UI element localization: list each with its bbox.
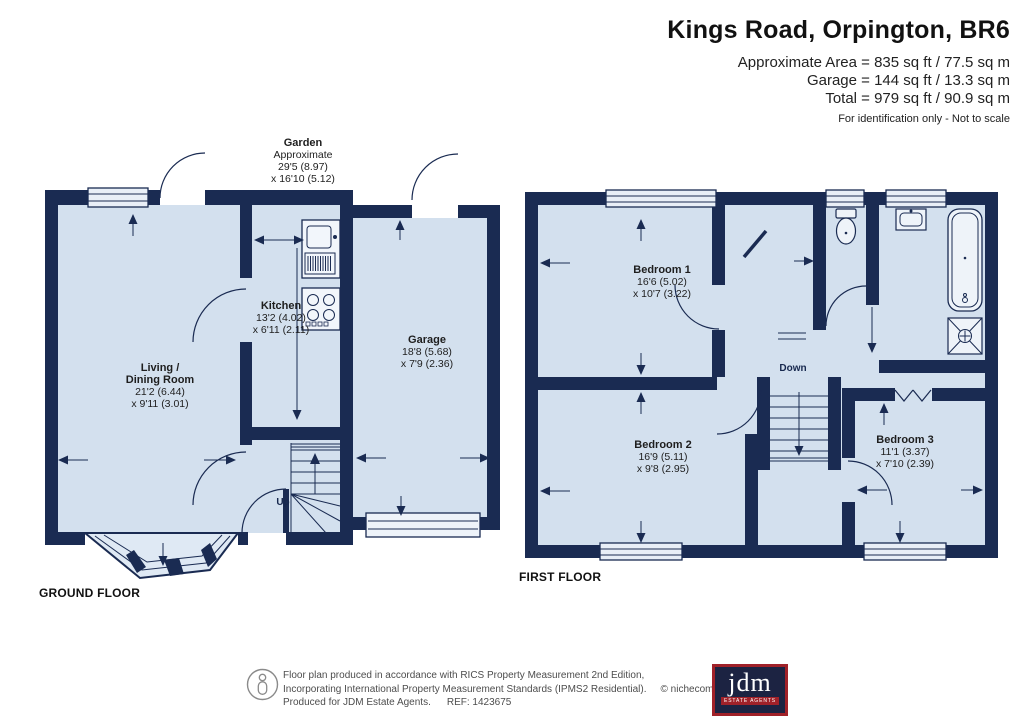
- first-floor-plan: [515, 180, 1010, 570]
- bedroom1-window: [606, 190, 716, 207]
- toilet-icon: [836, 209, 856, 244]
- bedroom2-label: Bedroom 2 16'9 (5.11) x 9'8 (2.95): [634, 439, 691, 475]
- ground-floor-plan: [35, 150, 505, 595]
- living-room-label: Living / Dining Room 21'2 (6.44) x 9'11 …: [126, 362, 194, 410]
- room-fills: [538, 205, 985, 545]
- garage-side-door-arc: [412, 154, 458, 200]
- garage-door: [366, 513, 480, 537]
- jdm-logo-text: jdm: [715, 669, 785, 696]
- bedroom3-window: [864, 543, 946, 560]
- down-label: Down: [779, 363, 806, 374]
- page-title: Kings Road, Orpington, BR6: [667, 16, 1010, 45]
- first-floor-caption: FIRST FLOOR: [519, 570, 601, 584]
- bedroom1-label: Bedroom 1 16'6 (5.02) x 10'7 (3.22): [633, 264, 691, 300]
- reference-number: REF: 1423675: [447, 697, 512, 708]
- bathroom-window: [886, 190, 946, 207]
- total-area: Total = 979 sq ft / 90.9 sq m: [667, 90, 1010, 108]
- kitchen-sink-icon: [302, 220, 340, 278]
- floorplan-page: Kings Road, Orpington, BR6 Approximate A…: [0, 0, 1020, 721]
- jdm-logo: jdm ESTATE AGENTS: [712, 664, 788, 716]
- living-window: [88, 188, 148, 207]
- footer-disclaimer: Floor plan produced in accordance with R…: [283, 669, 741, 710]
- disclaimer: For identification only - Not to scale: [667, 113, 1010, 125]
- garden-door-arc: [160, 153, 205, 198]
- wc-window: [826, 190, 864, 207]
- footer-line1: Floor plan produced in accordance with R…: [283, 669, 741, 683]
- bedroom2-window: [600, 543, 682, 560]
- bay-window: [85, 533, 238, 578]
- footer-line2: Incorporating International Property Mea…: [283, 683, 741, 697]
- approximate-area: Approximate Area = 835 sq ft / 77.5 sq m: [667, 54, 1010, 72]
- up-label: Up: [276, 497, 289, 508]
- garage-label: Garage 18'8 (5.68) x 7'9 (2.36): [401, 334, 453, 370]
- title-block: Kings Road, Orpington, BR6 Approximate A…: [667, 16, 1010, 125]
- footer-line3: Produced for JDM Estate Agents.REF: 1423…: [283, 696, 741, 710]
- garden-label: Garden Approximate 29'5 (8.97) x 16'10 (…: [271, 137, 335, 185]
- jdm-logo-subtext: ESTATE AGENTS: [721, 697, 779, 705]
- person-icon: [246, 668, 279, 706]
- ground-floor-caption: GROUND FLOOR: [39, 586, 140, 600]
- bath-icon: [948, 209, 982, 311]
- sink-icon: [896, 209, 926, 230]
- kitchen-label: Kitchen 13'2 (4.02) x 6'11 (2.11): [253, 300, 309, 336]
- garage-area: Garage = 144 sq ft / 13.3 sq m: [667, 72, 1010, 90]
- shower-icon: [948, 318, 982, 354]
- bedroom3-label: Bedroom 3 11'1 (3.37) x 7'10 (2.39): [876, 434, 934, 470]
